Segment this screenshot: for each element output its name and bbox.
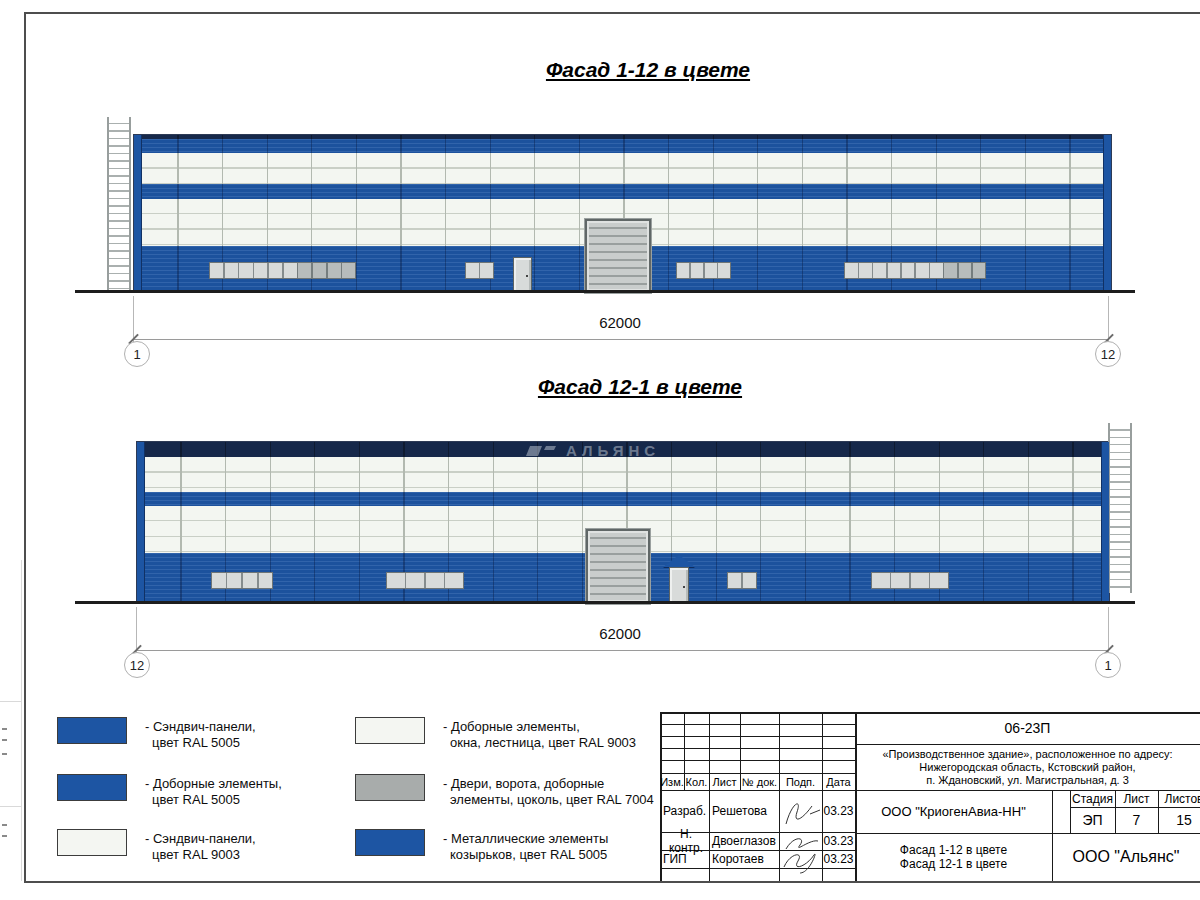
axis-bubble-12: 12 xyxy=(124,652,150,678)
margin-tick xyxy=(2,824,7,826)
door-canopy xyxy=(663,555,695,567)
axis-label: 1 xyxy=(1104,658,1111,673)
entrance-door xyxy=(669,567,689,604)
extension-line xyxy=(1108,296,1109,342)
legend-swatch-trim-5005 xyxy=(57,774,127,801)
legend-item: - Сэндвич-панели, цвет RAL 5005 xyxy=(145,719,256,751)
row-date: 03.23 xyxy=(822,850,855,868)
margin-tick xyxy=(2,753,7,755)
facade-band-blue xyxy=(134,184,1111,199)
legend-label: элементы, цоколь, цвет RAL 7004 xyxy=(443,792,654,808)
legend-swatch-trim-9003 xyxy=(355,717,425,744)
frame-top xyxy=(24,12,1200,14)
stage-value-cell: ЭП xyxy=(1070,807,1115,833)
titleblock-line xyxy=(660,736,855,737)
signature xyxy=(780,833,824,877)
entrance-door xyxy=(513,257,532,293)
axis-label: 1 xyxy=(133,347,140,362)
titleblock-line xyxy=(660,724,855,725)
ground-line xyxy=(75,601,1135,604)
row-role: ГИП xyxy=(663,850,709,868)
signature xyxy=(782,794,822,830)
company-cell: ООО "КриогенАвиа-НН" xyxy=(855,790,1052,833)
frame-margin-divider xyxy=(0,701,22,702)
watermark: АЛЬЯНС xyxy=(524,442,660,459)
sheet-title-line: Фасад 1-12 в цвете xyxy=(900,843,1007,857)
extension-line xyxy=(136,607,137,653)
watermark-text: АЛЬЯНС xyxy=(566,442,660,459)
col-header-izm: Изм. xyxy=(660,773,684,790)
window-strip xyxy=(844,262,986,279)
window-strip xyxy=(465,262,494,279)
row-name: Двоеглазов xyxy=(712,832,778,850)
legend-label: - Металлические элементы xyxy=(443,831,608,847)
sheet-title-line: Фасад 12-1 в цвете xyxy=(900,857,1007,871)
facade-band-white xyxy=(137,457,1109,492)
titleblock-line xyxy=(660,760,855,761)
axis-bubble-1: 1 xyxy=(1095,652,1121,678)
facade-1-12-drawing xyxy=(133,134,1112,292)
col-header-data: Дата xyxy=(822,773,855,790)
facade1-title: Фасад 1-12 в цвете xyxy=(388,58,908,82)
window-strip xyxy=(209,262,356,279)
titleblock-line xyxy=(660,868,855,869)
organization-cell: ООО "Альянс" xyxy=(1052,833,1200,881)
legend-label: - Сэндвич-панели, xyxy=(145,719,256,735)
window-strip xyxy=(676,262,731,279)
extension-line xyxy=(133,296,134,342)
legend-label: окна, лестница, цвет RAL 9003 xyxy=(443,735,636,751)
window-strip xyxy=(871,572,949,589)
extension-line xyxy=(1108,607,1109,653)
col-header-kol: Кол. xyxy=(684,773,709,790)
dimension-line xyxy=(136,650,1108,651)
row-name: Коротаев xyxy=(712,850,778,868)
roof-ladder-left xyxy=(107,117,131,290)
project-line: п. Ждановский, ул. Магистральная, д. 3 xyxy=(882,774,1172,787)
legend-swatch-sandwich-9003 xyxy=(57,829,127,856)
axis-bubble-1: 1 xyxy=(124,341,150,367)
axis-bubble-12: 12 xyxy=(1095,341,1121,367)
legend-swatch-canopy-5005 xyxy=(355,829,425,856)
project-line: Нижегородская область, Кстовский район, xyxy=(882,761,1172,774)
row-role: Разраб. xyxy=(663,790,709,832)
roof-ladder-right xyxy=(1108,423,1132,593)
legend-item: - Доборные элементы, цвет RAL 5005 xyxy=(145,776,282,808)
dimension-value: 62000 xyxy=(599,314,641,331)
legend-item: - Сэндвич-панели, цвет RAL 9003 xyxy=(145,831,256,863)
frame-margin-line xyxy=(21,560,22,881)
legend-label: - Двери, ворота, доборные xyxy=(443,776,654,792)
facade-band-blue xyxy=(137,492,1109,506)
legend-label: - Доборные элементы, xyxy=(443,719,636,735)
drawing-sheet: Фасад 1-12 в цвете 62000 1 12 Фасад 12-1… xyxy=(0,0,1200,900)
frame-margin-divider xyxy=(0,806,22,807)
row-date: 03.23 xyxy=(822,790,855,832)
legend-swatch-sandwich-5005 xyxy=(57,717,127,744)
sectional-gate xyxy=(585,219,651,293)
ground-line xyxy=(75,290,1135,293)
legend-item: - Доборные элементы, окна, лестница, цве… xyxy=(443,719,636,751)
facade2-title: Фасад 12-1 в цвете xyxy=(380,375,900,399)
legend-label: козырьков, цвет RAL 5005 xyxy=(443,847,608,863)
sheet-title-cell: Фасад 1-12 в цвете Фасад 12-1 в цвете xyxy=(855,833,1052,881)
dimension-line xyxy=(133,339,1108,340)
window-strip xyxy=(727,572,757,589)
listov-header-cell: Листов xyxy=(1158,790,1200,807)
stage-header-cell: Стадия xyxy=(1070,790,1115,807)
legend-label: цвет RAL 5005 xyxy=(145,735,256,751)
legend-swatch-doors-7004 xyxy=(355,774,425,801)
titleblock-line xyxy=(660,712,662,881)
col-header-list: Лист xyxy=(709,773,740,790)
legend-label: - Сэндвич-панели, xyxy=(145,831,256,847)
row-name: Решетова xyxy=(712,790,778,832)
list-header-cell: Лист xyxy=(1115,790,1158,807)
axis-label: 12 xyxy=(1101,347,1115,362)
titleblock-line xyxy=(660,748,855,749)
legend-label: цвет RAL 9003 xyxy=(145,847,256,863)
listov-value-cell: 15 xyxy=(1158,807,1200,833)
project-address-cell: «Производственное здание», расположенное… xyxy=(855,744,1200,790)
row-date: 03.23 xyxy=(822,832,855,850)
frame-bottom xyxy=(24,881,1200,883)
legend-item: - Двери, ворота, доборные элементы, цоко… xyxy=(443,776,654,808)
doc-number-cell: 06-23П xyxy=(855,712,1200,744)
window-strip xyxy=(386,572,464,589)
col-header-doc: № док. xyxy=(740,773,779,790)
frame-left xyxy=(24,12,26,883)
facade-band-blue xyxy=(134,139,1111,153)
legend-label: - Доборные элементы, xyxy=(145,776,282,792)
list-value-cell: 7 xyxy=(1115,807,1158,833)
legend-item: - Металлические элементы козырьков, цвет… xyxy=(443,831,608,863)
axis-label: 12 xyxy=(130,658,144,673)
margin-tick xyxy=(2,835,7,837)
col-header-podp: Подп. xyxy=(779,773,822,790)
alliance-logo-icon xyxy=(524,444,556,458)
margin-tick xyxy=(2,739,7,741)
facade-band-white xyxy=(134,153,1111,184)
legend-label: цвет RAL 5005 xyxy=(145,792,282,808)
sectional-gate xyxy=(586,529,650,604)
project-line: «Производственное здание», расположенное… xyxy=(882,748,1172,761)
window-strip xyxy=(211,572,273,589)
margin-tick xyxy=(2,728,7,730)
facade-12-1-drawing xyxy=(136,441,1110,603)
dimension-value: 62000 xyxy=(599,625,641,642)
titleblock-line xyxy=(709,712,710,881)
row-role: Н. контр. xyxy=(663,832,709,850)
